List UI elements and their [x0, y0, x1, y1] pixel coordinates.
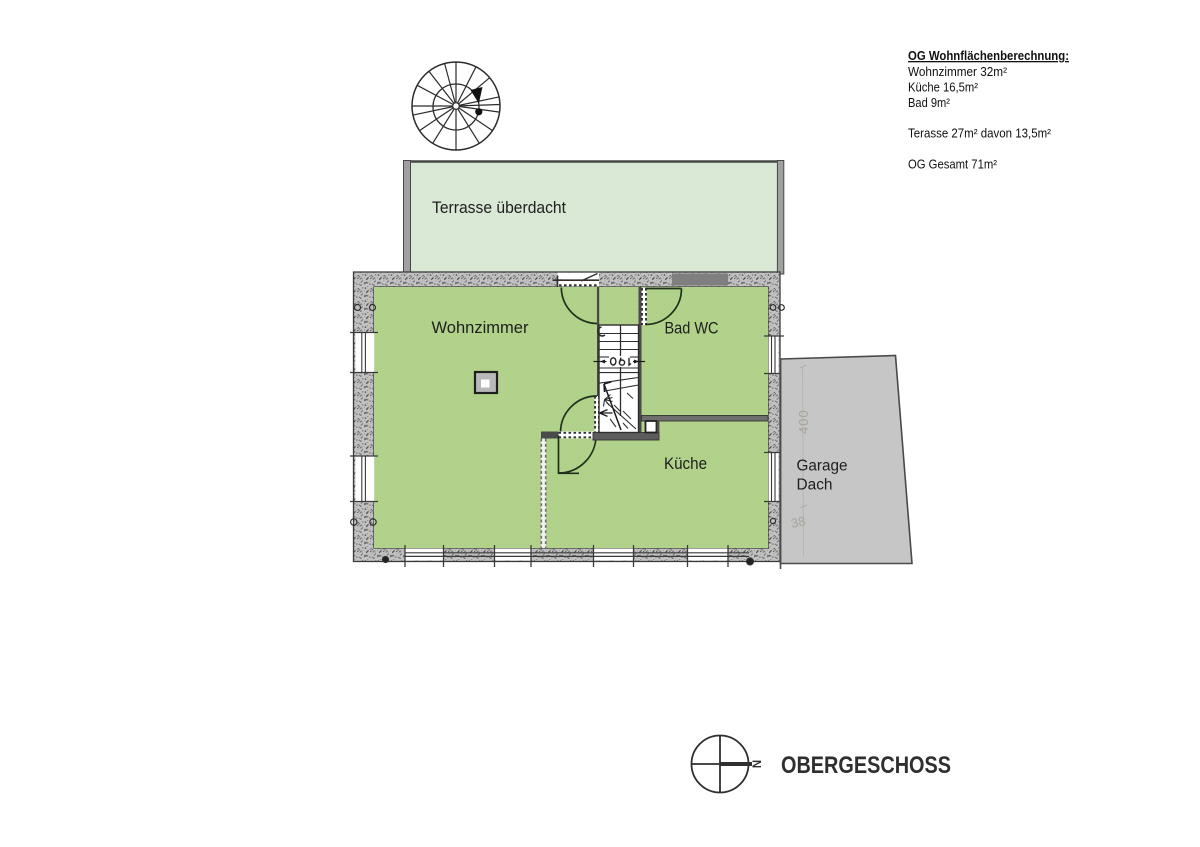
svg-text:Bad 9m²: Bad 9m² [908, 95, 951, 110]
svg-text:38: 38 [790, 513, 807, 531]
svg-text:Küche: Küche [664, 454, 707, 473]
svg-text:Küche 16,5m²: Küche 16,5m² [908, 80, 979, 95]
svg-text:400: 400 [796, 409, 811, 434]
svg-text:N: N [750, 760, 762, 768]
svg-text:Garage: Garage [797, 458, 848, 475]
svg-text:OBERGESCHOSS: OBERGESCHOSS [781, 752, 951, 779]
svg-text:Bad WC: Bad WC [665, 319, 719, 338]
svg-text:Wohnzimmer: Wohnzimmer [432, 318, 529, 337]
svg-text:Dach: Dach [797, 477, 833, 494]
svg-text:OG Gesamt 71m²: OG Gesamt 71m² [908, 157, 998, 172]
svg-text:Wohnzimmer 32m²: Wohnzimmer 32m² [908, 64, 1008, 79]
svg-text:OG Wohnflächenberechnung:: OG Wohnflächenberechnung: [908, 48, 1069, 63]
svg-text:Terasse 27m² davon 13,5m²: Terasse 27m² davon 13,5m² [908, 126, 1052, 141]
svg-text:Terrasse überdacht: Terrasse überdacht [432, 198, 566, 217]
